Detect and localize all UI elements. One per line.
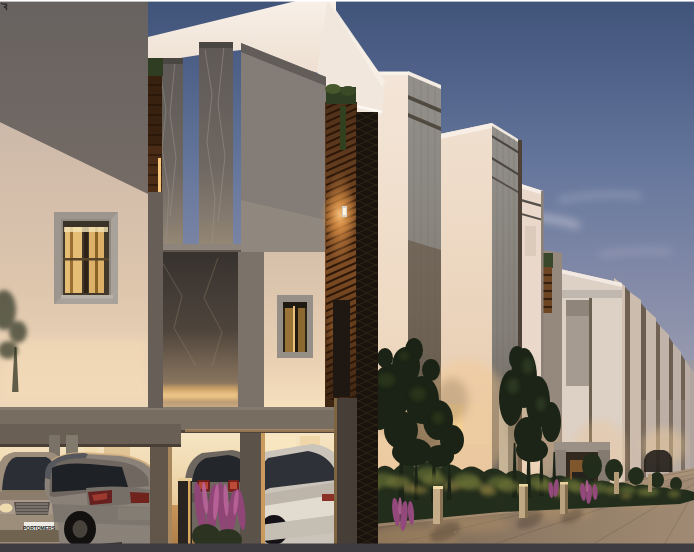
svg-text:PORTOMERS: PORTOMERS: [23, 525, 56, 531]
